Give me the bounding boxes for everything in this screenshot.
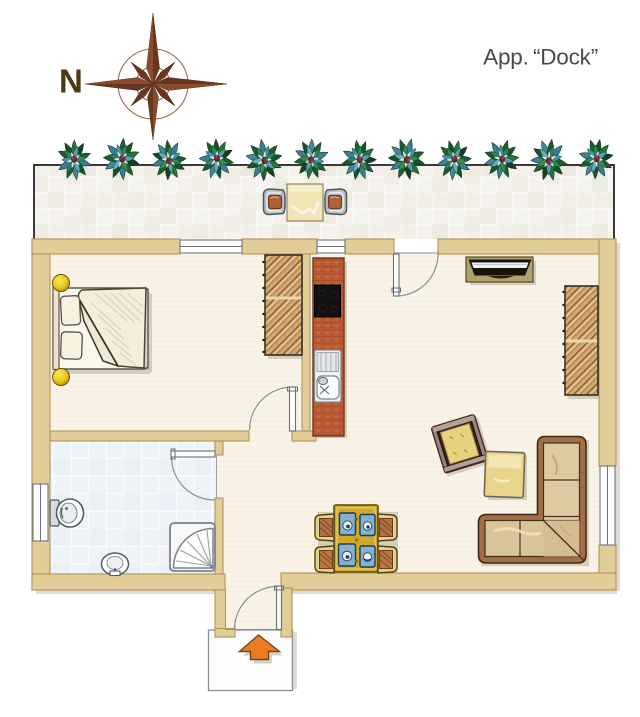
svg-text:N: N <box>59 63 83 100</box>
svg-text:App. “Dock”: App. “Dock” <box>483 45 598 70</box>
